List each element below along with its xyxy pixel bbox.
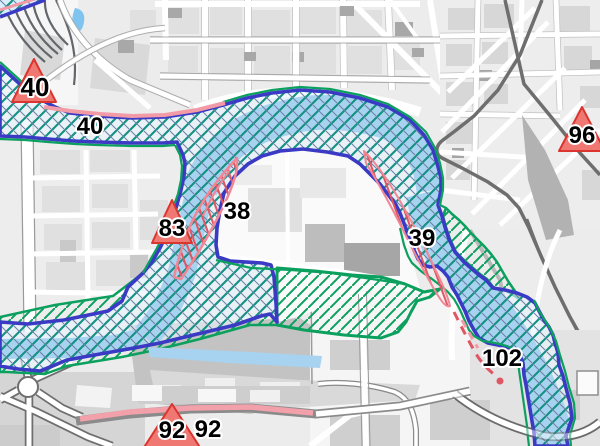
svg-text:40: 40 bbox=[21, 72, 50, 102]
svg-text:96: 96 bbox=[569, 122, 596, 149]
svg-text:40: 40 bbox=[77, 113, 104, 140]
svg-text:83: 83 bbox=[159, 215, 186, 242]
svg-text:39: 39 bbox=[409, 225, 436, 252]
svg-text:102: 102 bbox=[482, 345, 522, 372]
svg-text:38: 38 bbox=[224, 198, 251, 225]
svg-text:92: 92 bbox=[195, 416, 222, 443]
svg-text:92: 92 bbox=[159, 417, 186, 444]
